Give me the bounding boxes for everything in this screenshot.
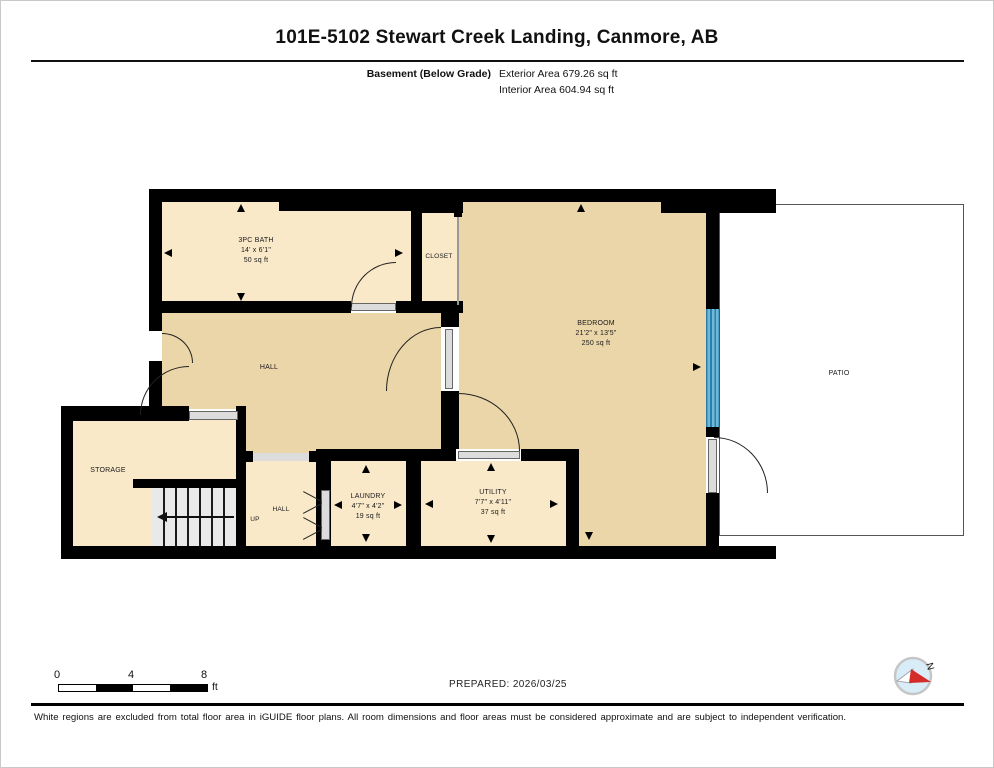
room-dims: 14' x 6'1" xyxy=(186,246,326,256)
dimension-arrow-up xyxy=(237,204,245,212)
room-name: CLOSET xyxy=(409,252,469,261)
door-leaf xyxy=(189,411,238,420)
room-name: PATIO xyxy=(769,369,909,379)
floorplan-page: 101E-5102 Stewart Creek Landing, Canmore… xyxy=(0,0,994,768)
floor-plan: 3PC BATH 14' x 6'1" 50 sq ft CLOSET BEDR… xyxy=(1,1,994,768)
opening-cap xyxy=(454,211,462,217)
room-area: 50 sq ft xyxy=(186,256,326,266)
dimension-arrow-down xyxy=(487,535,495,543)
wall xyxy=(441,391,459,449)
wall xyxy=(566,461,579,546)
wall xyxy=(133,479,236,488)
room-label-storage: STORAGE xyxy=(38,466,178,476)
room-label-bedroom: BEDROOM 21'2" x 13'5" 250 sq ft xyxy=(526,319,666,349)
dimension-arrow-up xyxy=(487,463,495,471)
wall xyxy=(661,189,776,213)
wall xyxy=(279,189,416,211)
dimension-arrow-right xyxy=(550,500,558,508)
room-name: BEDROOM xyxy=(526,319,666,329)
disclaimer-text: White regions are excluded from total fl… xyxy=(34,712,964,723)
room-label-utility: UTILITY 7'7" x 4'11" 37 sq ft xyxy=(423,488,563,518)
room-dims: 4'7" x 4'2" xyxy=(298,502,438,512)
compass-north-label: N xyxy=(923,662,935,672)
wall xyxy=(236,406,246,546)
door-leaf xyxy=(445,329,453,389)
dimension-arrow-down xyxy=(362,534,370,542)
wall xyxy=(316,449,456,461)
scale-tick-8: 8 xyxy=(201,669,207,681)
wall xyxy=(61,546,776,559)
wall xyxy=(706,427,719,437)
room-label-closet: CLOSET xyxy=(409,252,469,261)
dimension-arrow-left xyxy=(164,249,172,257)
dimension-arrow-up xyxy=(577,204,585,212)
dimension-arrow-up xyxy=(362,465,370,473)
room-bedroom-lower xyxy=(579,449,706,546)
scale-unit: ft xyxy=(212,681,218,693)
room-name: 3PC BATH xyxy=(186,236,326,246)
room-name: UTILITY xyxy=(423,488,563,498)
room-label-hall-upper: HALL xyxy=(199,363,339,373)
room-name: STORAGE xyxy=(38,466,178,476)
wall xyxy=(706,213,719,309)
scale-bar xyxy=(58,684,208,692)
scale-tick-0: 0 xyxy=(54,669,60,681)
wall xyxy=(521,449,579,461)
room-name: HALL xyxy=(199,363,339,373)
dimension-arrow-right xyxy=(394,501,402,509)
dimension-arrow-right xyxy=(693,363,701,371)
room-dims: 21'2" x 13'5" xyxy=(526,329,666,339)
dimension-arrow-right xyxy=(395,249,403,257)
room-label-patio: PATIO xyxy=(769,369,909,379)
wall xyxy=(61,406,73,559)
room-area: 250 sq ft xyxy=(526,339,666,349)
window xyxy=(706,309,719,427)
opening-cap xyxy=(246,451,253,462)
dimension-arrow-left xyxy=(425,500,433,508)
wall xyxy=(441,313,459,327)
scale-tick-4: 4 xyxy=(128,669,134,681)
room-hall-upper-lower-part xyxy=(246,409,441,453)
room-storage-lower xyxy=(73,479,151,546)
room-area: 19 sq ft xyxy=(298,512,438,522)
room-label-laundry: LAUNDRY 4'7" x 4'2" 19 sq ft xyxy=(298,492,438,522)
stairs-direction-line xyxy=(167,516,234,518)
compass-icon: N xyxy=(892,653,938,704)
stairs-direction-arrow xyxy=(157,512,167,522)
room-area: 37 sq ft xyxy=(423,508,563,518)
wall xyxy=(706,493,719,546)
door-leaf xyxy=(458,451,520,459)
wall xyxy=(161,301,351,313)
dimension-arrow-down xyxy=(237,293,245,301)
room-label-bath: 3PC BATH 14' x 6'1" 50 sq ft xyxy=(186,236,326,266)
wall xyxy=(396,301,463,313)
up-label: UP xyxy=(225,515,285,524)
room-name: LAUNDRY xyxy=(298,492,438,502)
room-dims: 7'7" x 4'11" xyxy=(423,498,563,508)
prepared-date: PREPARED: 2026/03/25 xyxy=(449,679,567,690)
opening-cap xyxy=(454,305,462,311)
dimension-arrow-down xyxy=(585,532,593,540)
door-swing-arc xyxy=(140,366,189,415)
dimension-arrow-left xyxy=(334,501,342,509)
opening-cap xyxy=(309,451,316,462)
footer-divider xyxy=(31,703,964,706)
stairs-up-label: UP xyxy=(225,515,285,524)
hall-threshold xyxy=(252,453,310,461)
